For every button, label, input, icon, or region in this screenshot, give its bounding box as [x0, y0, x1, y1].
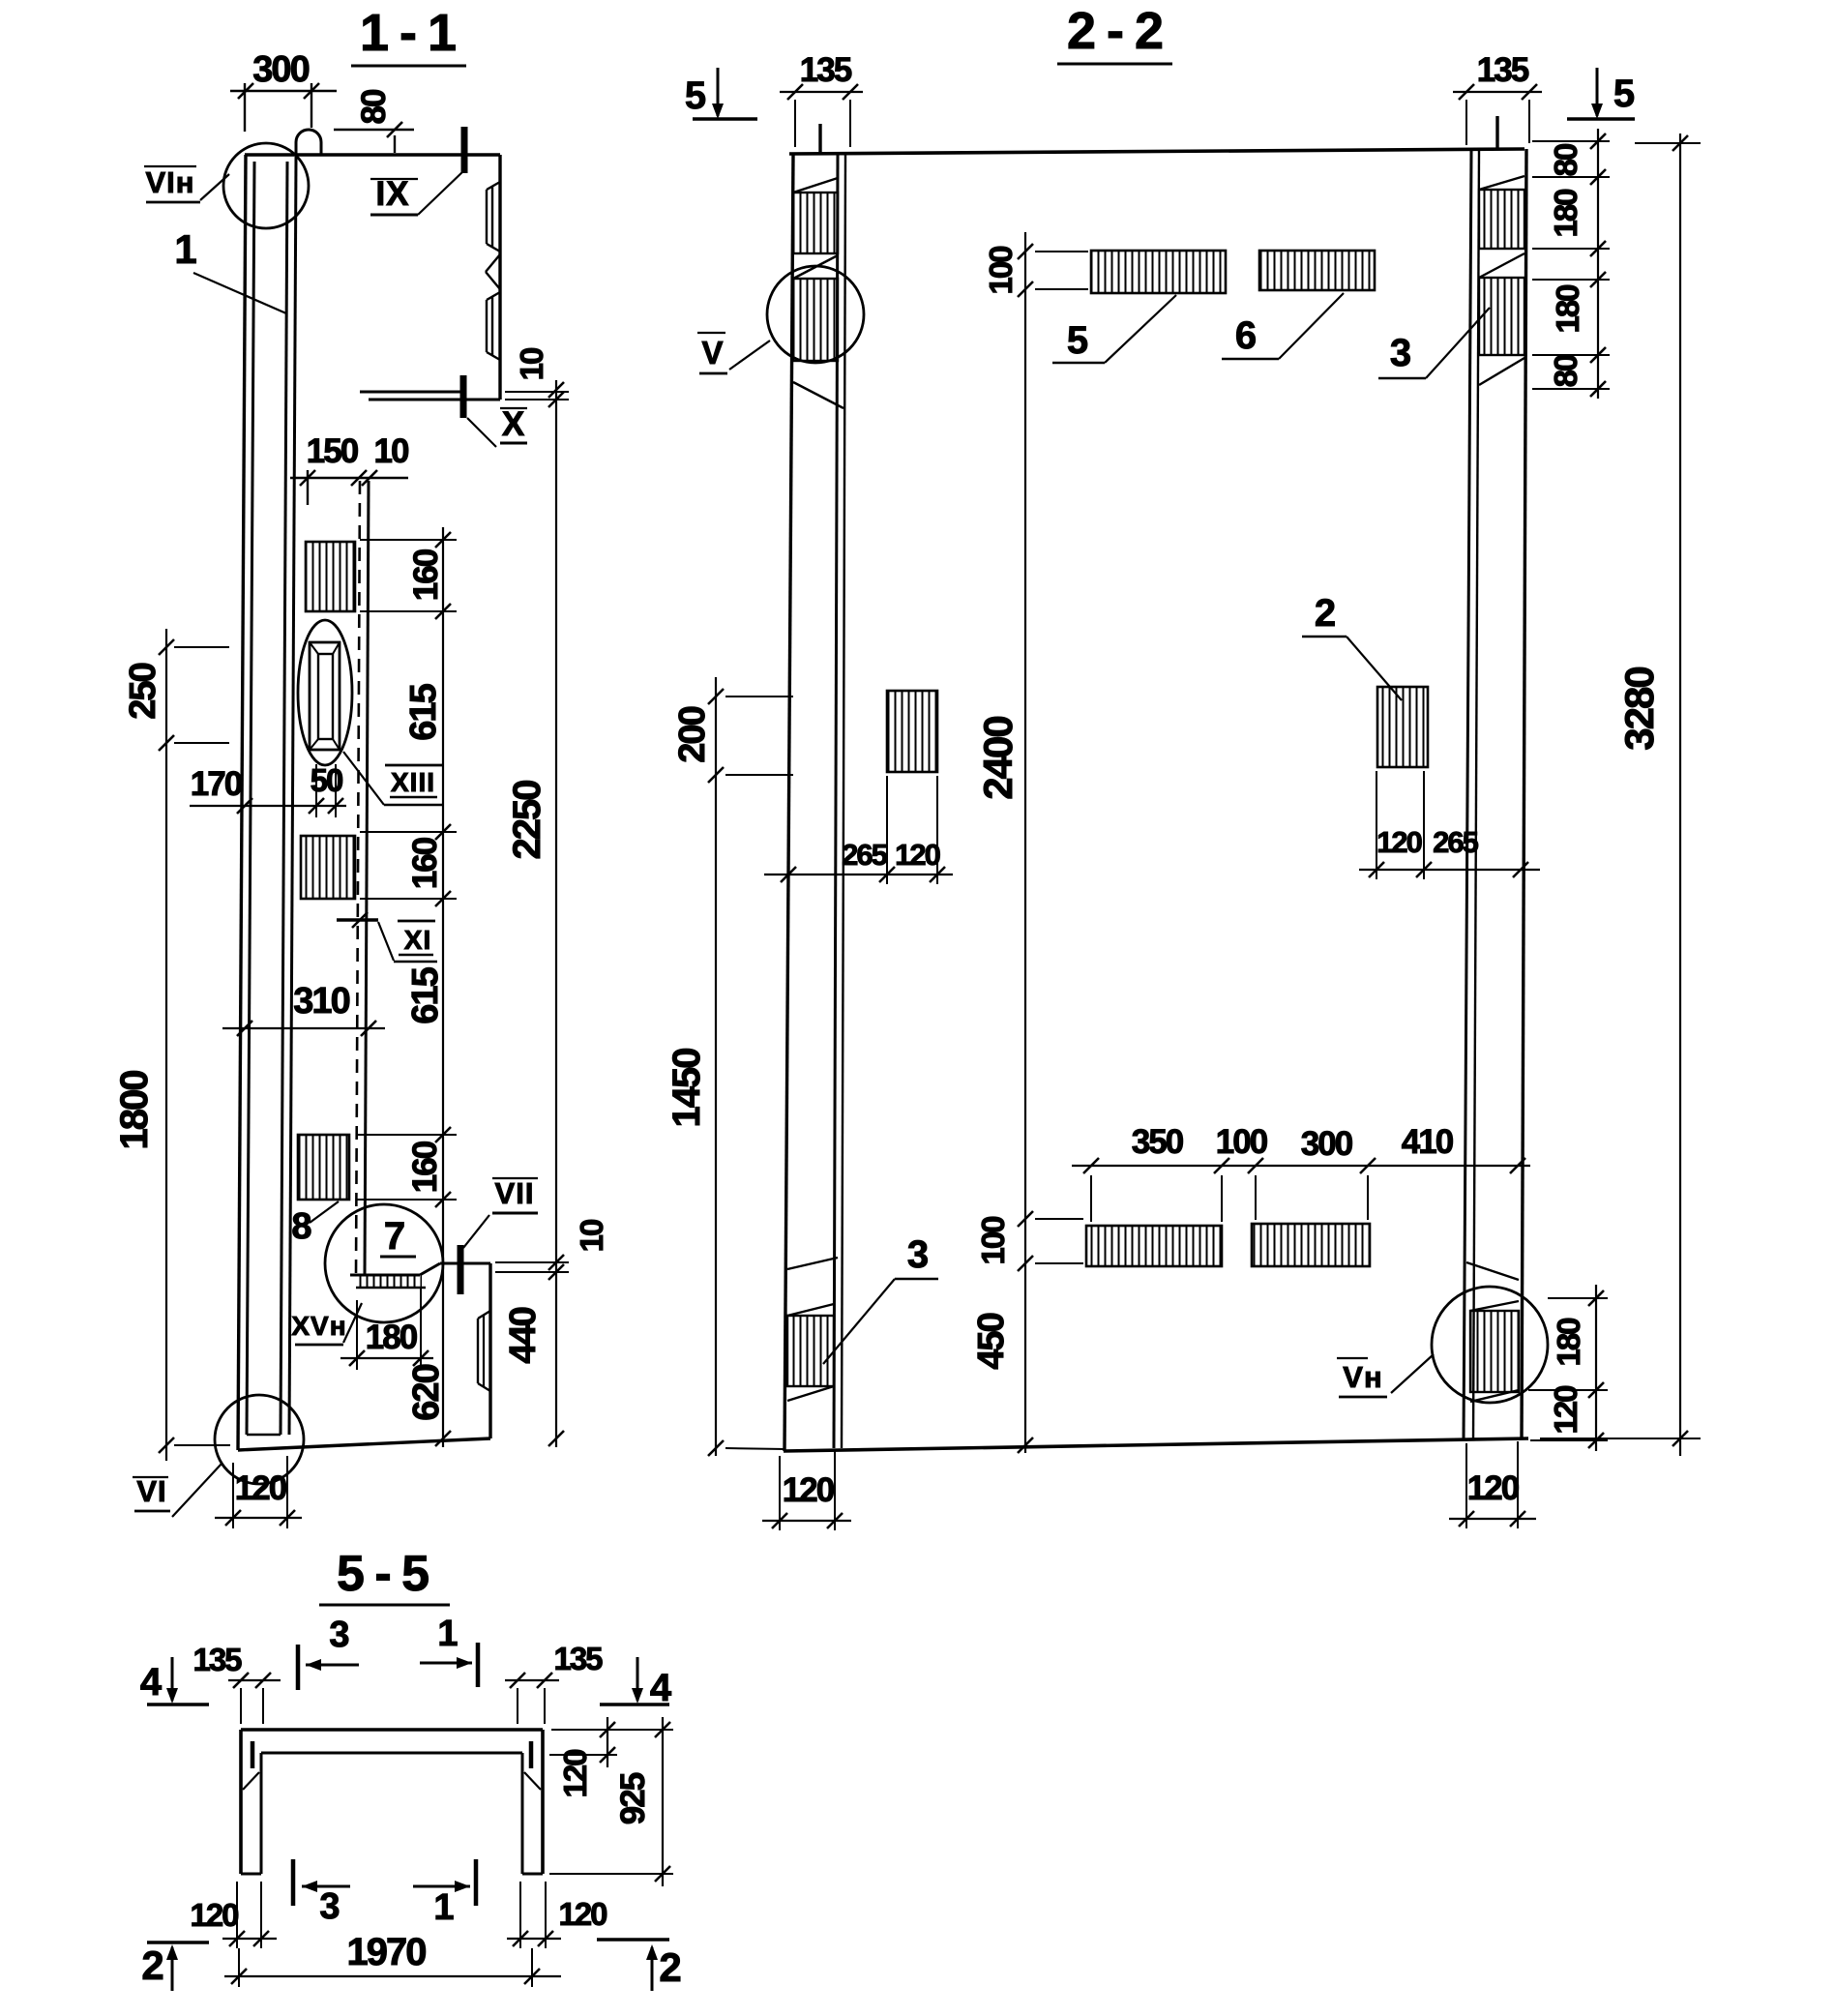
svg-text:440: 440	[503, 1307, 544, 1363]
svg-text:450: 450	[971, 1313, 1012, 1369]
svg-text:IX: IX	[375, 175, 409, 213]
svg-text:180: 180	[366, 1319, 418, 1356]
svg-text:310: 310	[293, 981, 349, 1022]
svg-text:10: 10	[514, 348, 549, 380]
svg-text:1: 1	[433, 1887, 454, 1928]
svg-text:2400: 2400	[975, 717, 1021, 800]
svg-text:3: 3	[319, 1886, 339, 1927]
svg-text:80: 80	[1548, 355, 1583, 387]
svg-text:120: 120	[1467, 1469, 1520, 1507]
svg-text:180: 180	[1551, 1319, 1586, 1367]
svg-text:X: X	[502, 405, 525, 443]
svg-text:135: 135	[800, 51, 852, 89]
svg-text:100: 100	[1216, 1123, 1268, 1161]
svg-text:10: 10	[574, 1220, 609, 1252]
svg-text:615: 615	[405, 966, 446, 1023]
svg-text:160: 160	[406, 837, 444, 889]
svg-text:Vн: Vн	[1343, 1360, 1382, 1394]
svg-text:120: 120	[1548, 1386, 1583, 1435]
svg-text:1800: 1800	[113, 1071, 156, 1150]
svg-text:5: 5	[1613, 73, 1635, 115]
svg-text:5 - 5: 5 - 5	[337, 1546, 429, 1602]
svg-text:120: 120	[558, 1896, 607, 1932]
svg-text:2: 2	[659, 1944, 680, 1990]
svg-text:300: 300	[1301, 1125, 1353, 1163]
svg-text:3: 3	[329, 1615, 348, 1655]
svg-text:100: 100	[983, 247, 1019, 295]
svg-text:120: 120	[557, 1750, 593, 1798]
svg-text:200: 200	[672, 706, 713, 762]
svg-text:XIII: XIII	[391, 767, 435, 797]
svg-text:VIн: VIн	[145, 165, 194, 199]
svg-text:3280: 3280	[1616, 667, 1662, 751]
svg-text:8: 8	[291, 1206, 311, 1247]
svg-text:VII: VII	[495, 1176, 535, 1210]
svg-text:V: V	[701, 335, 724, 371]
svg-text:5: 5	[1067, 319, 1088, 362]
svg-text:1: 1	[174, 226, 196, 272]
svg-text:2: 2	[141, 1942, 163, 1988]
svg-text:120: 120	[783, 1471, 835, 1509]
svg-text:1970: 1970	[347, 1931, 427, 1973]
svg-text:6: 6	[1235, 314, 1256, 357]
svg-text:5: 5	[685, 74, 706, 117]
svg-text:160: 160	[406, 1141, 444, 1193]
svg-text:615: 615	[403, 683, 444, 740]
svg-text:120: 120	[235, 1469, 287, 1507]
svg-text:180: 180	[1548, 190, 1583, 238]
svg-text:135: 135	[192, 1642, 242, 1677]
svg-text:80: 80	[355, 89, 393, 124]
svg-text:3: 3	[1390, 332, 1410, 374]
svg-text:7: 7	[384, 1215, 404, 1258]
svg-text:1450: 1450	[666, 1049, 708, 1128]
svg-text:150: 150	[307, 432, 359, 470]
svg-text:4: 4	[140, 1661, 163, 1704]
svg-text:135: 135	[1477, 51, 1529, 89]
svg-text:350: 350	[1132, 1123, 1184, 1161]
svg-text:120: 120	[1376, 825, 1421, 859]
svg-text:120: 120	[895, 838, 939, 872]
svg-text:100: 100	[975, 1217, 1011, 1265]
svg-text:1 - 1: 1 - 1	[360, 4, 456, 62]
svg-text:XI: XI	[404, 925, 431, 955]
svg-text:2250: 2250	[506, 781, 548, 860]
svg-text:10: 10	[374, 432, 409, 470]
svg-text:3: 3	[907, 1233, 928, 1276]
svg-text:265: 265	[1433, 825, 1478, 859]
svg-text:410: 410	[1402, 1123, 1454, 1161]
svg-text:135: 135	[553, 1641, 603, 1676]
svg-text:620: 620	[406, 1364, 447, 1420]
svg-text:170: 170	[191, 765, 243, 803]
svg-text:XVн: XVн	[291, 1311, 346, 1341]
svg-text:VI: VI	[136, 1474, 166, 1508]
svg-text:50: 50	[311, 762, 342, 798]
svg-text:300: 300	[252, 49, 309, 90]
svg-text:1: 1	[437, 1614, 458, 1654]
svg-text:180: 180	[1550, 285, 1585, 334]
svg-text:2: 2	[1315, 592, 1335, 635]
svg-text:925: 925	[614, 1772, 652, 1824]
svg-text:265: 265	[842, 838, 887, 872]
svg-text:250: 250	[123, 663, 163, 719]
svg-text:2 - 2: 2 - 2	[1067, 2, 1162, 60]
svg-text:160: 160	[407, 548, 445, 601]
svg-text:80: 80	[1548, 144, 1583, 176]
svg-text:120: 120	[190, 1897, 238, 1933]
